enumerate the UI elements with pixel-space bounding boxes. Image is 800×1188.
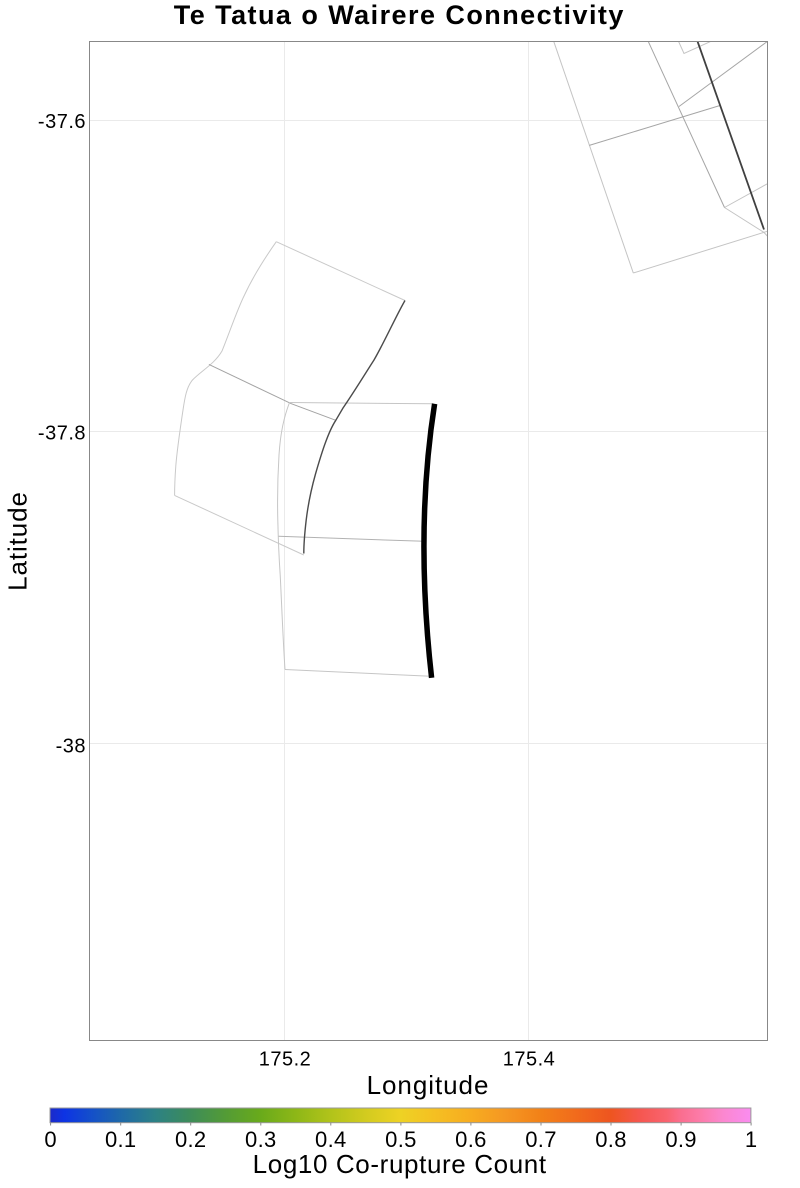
svg-text:-37.8: -37.8	[38, 423, 86, 445]
svg-text:0.9: 0.9	[665, 1127, 696, 1152]
svg-text:-37.6: -37.6	[38, 111, 86, 133]
svg-text:Te Tatua o Wairere Connectivit: Te Tatua o Wairere Connectivity	[174, 0, 625, 30]
svg-text:175.4: 175.4	[503, 1048, 556, 1070]
svg-text:1: 1	[745, 1127, 758, 1152]
svg-text:Log10 Co-rupture Count: Log10 Co-rupture Count	[253, 1149, 547, 1179]
svg-text:0: 0	[44, 1127, 57, 1152]
svg-text:0.1: 0.1	[105, 1127, 136, 1152]
svg-text:-38: -38	[56, 735, 86, 757]
svg-text:175.2: 175.2	[259, 1048, 312, 1070]
svg-text:Latitude: Latitude	[3, 491, 33, 591]
svg-text:0.8: 0.8	[595, 1127, 626, 1152]
svg-text:0.2: 0.2	[175, 1127, 206, 1152]
svg-text:Longitude: Longitude	[367, 1070, 490, 1100]
